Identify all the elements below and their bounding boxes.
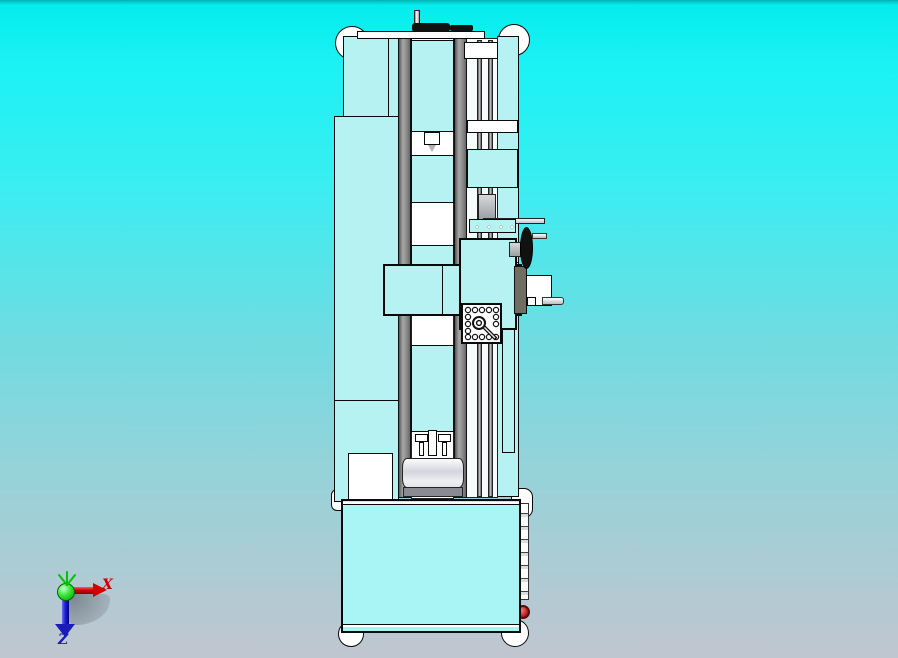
ram-lower-block[interactable] (411, 345, 454, 432)
lower-handle-pin[interactable] (542, 297, 564, 305)
base-top-trim (343, 502, 519, 505)
panel-seam (388, 37, 389, 117)
screw-bracket[interactable] (467, 149, 518, 188)
ram-upper-block[interactable] (411, 40, 454, 132)
clamp-flange (469, 219, 516, 233)
center-rod (428, 430, 437, 456)
triad-shadow (68, 594, 110, 625)
cylinder-collar (403, 487, 463, 497)
x-axis-shaft (72, 587, 94, 594)
panel-seam (442, 266, 443, 314)
x-axis-label: X (102, 578, 113, 592)
panel-seam (335, 400, 398, 401)
base-bottom-trim (343, 624, 519, 627)
top-handwheel-hub (450, 25, 473, 31)
z-axis-label: Z (58, 633, 68, 647)
index-plate[interactable] (461, 303, 502, 344)
clamp-tab (438, 434, 451, 442)
clamp-tab-stem (442, 442, 447, 456)
ram-seg (411, 245, 454, 265)
right-column-panel (502, 327, 515, 453)
z-axis-shaft (62, 599, 69, 625)
ram-mid-block[interactable] (411, 155, 454, 203)
index-plate-holes (463, 305, 500, 342)
top-right-block (464, 42, 498, 59)
tool-tip (428, 145, 436, 152)
screw-bearing-plate (467, 120, 518, 133)
top-handwheel[interactable] (412, 23, 450, 32)
top-plate (357, 31, 485, 39)
feed-block-boss (527, 297, 536, 306)
clamp-tab-stem (419, 442, 424, 456)
drive-nut-block (478, 194, 496, 220)
cad-viewport[interactable]: X Z (0, 0, 898, 658)
left-column-top[interactable] (343, 36, 399, 118)
piston-cylinder[interactable] (402, 458, 464, 488)
left-lower-panel[interactable] (348, 453, 393, 501)
base-cabinet[interactable] (341, 499, 521, 633)
clamp-tab (415, 434, 428, 442)
tool-pendant[interactable] (424, 132, 440, 145)
y-axis-spikes (55, 570, 79, 586)
upper-handwheel-handle[interactable] (532, 233, 547, 239)
